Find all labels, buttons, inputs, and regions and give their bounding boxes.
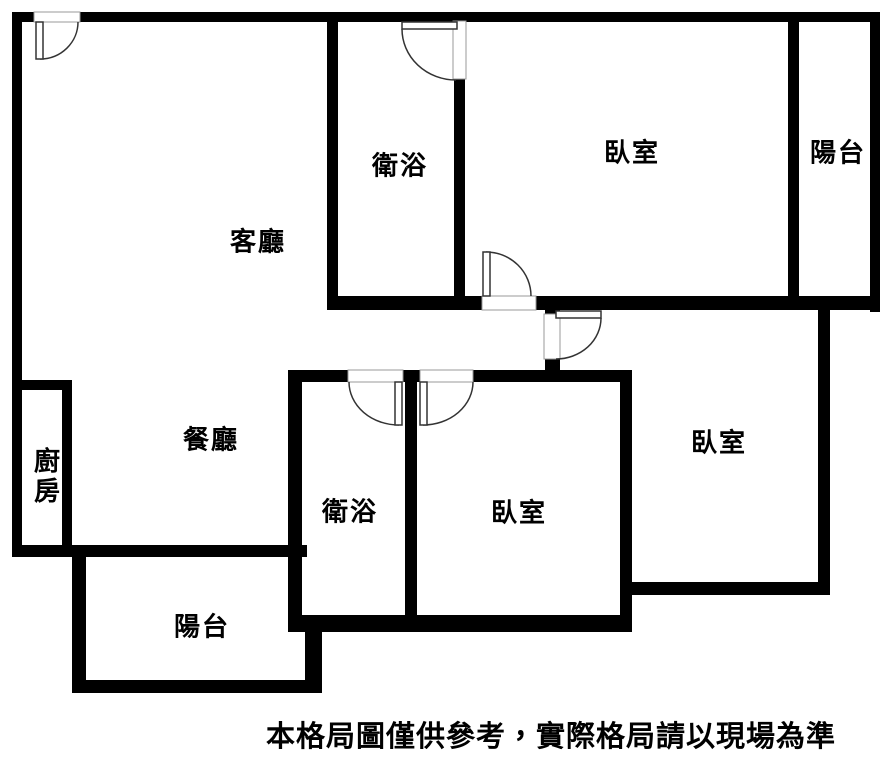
bathroom-top-door-swing-arc [402,29,456,80]
room-label-bathroom-top: 衛浴 [372,146,428,183]
room-label-balcony-top: 陽台 [810,133,866,170]
entry-door-leaf [36,22,43,59]
wall [405,382,417,632]
bedroom-right-door-threshold [544,314,560,359]
wall [545,358,560,372]
wall [288,615,632,632]
entry-door-swing-arc [40,22,78,59]
floor-plan: 客廳 衛浴 臥室 陽台 餐廳 廚房 衛浴 臥室 臥室 陽台 本格局圖僅供參考，實… [0,0,889,759]
bedroom-middle-door-threshold [420,370,473,382]
bedroom-right-door-leaf [556,311,601,318]
disclaimer-text: 本格局圖僅供參考，實際格局請以現場為準 [266,713,836,755]
wall [305,630,322,693]
wall [473,370,620,382]
bathroom-middle-door-swing-arc [349,382,399,425]
entry-door-threshold [34,12,80,22]
room-label-balcony-bottom: 陽台 [174,607,230,644]
bedroom-middle-door-leaf [420,382,427,425]
bathroom-top-door-leaf [402,22,457,29]
wall [632,582,830,595]
room-label-bedroom-top: 臥室 [604,133,660,170]
wall [818,310,830,595]
wall [72,680,322,693]
wall [788,12,799,308]
wall [12,545,307,557]
wall [288,370,302,630]
bedroom-top-door-threshold [482,296,536,310]
room-label-bathroom-middle: 衛浴 [322,492,378,529]
room-label-bedroom-right: 臥室 [691,423,747,460]
floor-plan-drawing [0,0,889,759]
bedroom-top-door-swing-arc [486,252,531,296]
wall [327,296,483,310]
room-label-living-room: 客廳 [230,222,286,259]
bathroom-middle-door-threshold [348,370,403,382]
wall [327,12,338,308]
bedroom-right-door-swing-arc [556,318,601,359]
wall [870,12,880,312]
wall [12,12,22,557]
wall [80,12,880,22]
wall [72,545,86,693]
bathroom-middle-door-leaf [395,382,402,425]
wall [403,370,420,382]
bedroom-top-door-leaf [483,252,490,296]
bedroom-middle-door-swing-arc [423,382,473,425]
wall [454,78,465,308]
room-label-dining-room: 餐廳 [183,420,239,457]
wall [620,370,632,632]
room-label-kitchen: 廚房 [28,447,65,507]
wall [535,296,880,310]
room-label-bedroom-middle: 臥室 [491,493,547,530]
